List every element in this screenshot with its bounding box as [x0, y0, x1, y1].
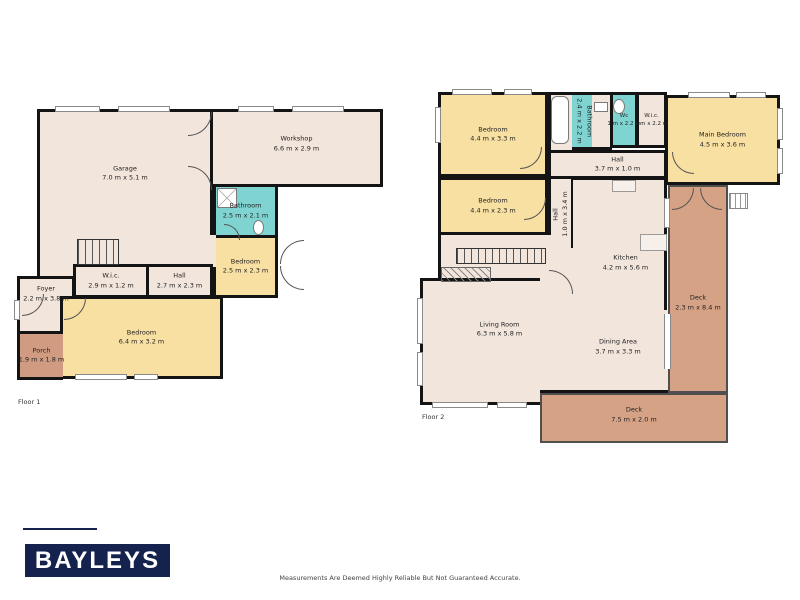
room-dimensions: 4.4 m x 2.3 m [470, 206, 515, 216]
floor2-label: Floor 2 [422, 413, 444, 421]
room-label: Bathroom2.4 m x 2.2 m [574, 98, 594, 143]
stairs [77, 239, 119, 265]
room-dimensions: 1.0 m x 3.4 m [561, 191, 571, 236]
slider-door [664, 314, 671, 369]
room-label: Main Bedroom4.5 m x 3.6 m [699, 130, 746, 150]
room-dimensions: 1 m x 2.2 m [635, 120, 668, 128]
room-label: Deck2.3 m x 8.4 m [675, 293, 720, 313]
room-name: Living Room [477, 320, 522, 330]
bayleys-logo: BAYLEYS [25, 544, 170, 577]
room-dimensions: 1.9 m x 1.8 m [19, 356, 64, 366]
room-label: W.i.c.2.9 m x 1.2 m [88, 271, 133, 291]
window [292, 106, 344, 112]
room-label: Hall1.0 m x 3.4 m [551, 191, 571, 236]
window [777, 148, 783, 174]
room-label: Kitchen4.2 m x 5.6 m [603, 253, 648, 273]
room-name: Hall [595, 155, 640, 165]
bathtub-icon [551, 96, 569, 144]
stove-icon [640, 234, 667, 251]
room-name: Hall [157, 271, 202, 281]
window [452, 89, 492, 95]
room-label: Garage7.0 m x 5.1 m [102, 164, 147, 184]
room-label: Bedroom4.4 m x 3.3 m [470, 125, 515, 145]
room-name: W.i.c. [635, 112, 668, 120]
room-label: Deck7.5 m x 2.0 m [611, 405, 656, 425]
stairs [456, 248, 546, 264]
window [432, 402, 488, 408]
room-living-room-f2: Living Room6.3 m x 5.8 m [420, 278, 540, 405]
logo-stripe [23, 528, 97, 530]
room-dimensions: 2.4 m x 2.2 m [574, 98, 584, 143]
room-dimensions: 3.7 m x 3.3 m [595, 347, 640, 357]
room-garage-f1: Garage7.0 m x 5.1 m [37, 109, 213, 238]
room-label: W.i.c.1 m x 2.2 m [635, 112, 668, 129]
room-name: Bedroom [470, 125, 515, 135]
window [238, 106, 274, 112]
room-name: Bathroom [223, 201, 268, 211]
room-dimensions: 2.2 m x 3.8 m [23, 294, 68, 304]
window [134, 374, 158, 380]
room-hall-f1: Hall2.7 m x 2.3 m [146, 264, 213, 298]
room-hall-f2: Hall3.7 m x 1.0 m [548, 150, 667, 179]
room-label: Bedroom6.4 m x 3.2 m [119, 328, 164, 348]
room-label: Hall2.7 m x 2.3 m [157, 271, 202, 291]
room-name: Bedroom [119, 328, 164, 338]
disclaimer-text: Measurements Are Deemed Highly Reliable … [0, 574, 800, 582]
floorplan-canvas: Garage7.0 m x 5.1 mWorkshop6.6 m x 2.9 m… [0, 0, 800, 600]
door-arc [280, 240, 304, 264]
toilet-icon [253, 220, 264, 235]
room-hall-f2: Hall1.0 m x 3.4 m [548, 179, 574, 249]
room-name: Hall [551, 191, 561, 236]
window [504, 89, 532, 95]
window [688, 92, 730, 98]
room-label: Workshop6.6 m x 2.9 m [274, 134, 319, 154]
room-label: Bedroom2.5 m x 2.3 m [223, 257, 268, 277]
room-main-bedroom-f2: Main Bedroom4.5 m x 3.6 m [665, 95, 780, 185]
room-name: Kitchen [603, 253, 648, 263]
hatch [441, 267, 491, 282]
window [417, 298, 423, 344]
room-bedroom-f1: Bedroom2.5 m x 2.3 m [213, 235, 278, 298]
room-dimensions: 4.4 m x 3.3 m [470, 135, 515, 145]
room-dimensions: 2.7 m x 2.3 m [157, 281, 202, 291]
room-dimensions: 6.3 m x 5.8 m [477, 330, 522, 340]
window [777, 108, 783, 140]
window [55, 106, 100, 112]
window [417, 352, 423, 386]
room-bedroom-f1: Bedroom6.4 m x 3.2 m [60, 296, 223, 379]
floor1-label: Floor 1 [18, 398, 40, 406]
room-label: Bathroom2.5 m x 2.1 m [223, 201, 268, 221]
room-dimensions: 4.5 m x 3.6 m [699, 140, 746, 150]
window [75, 374, 127, 380]
room-dimensions: 6.4 m x 3.2 m [119, 338, 164, 348]
room-deck-f2: Deck7.5 m x 2.0 m [540, 393, 728, 443]
room-label: Foyer2.2 m x 3.8 m [23, 284, 68, 304]
room-name: Dining Area [595, 337, 640, 347]
room-dimensions: 2.5 m x 2.1 m [223, 211, 268, 221]
room-w-i-c-f1: W.i.c.2.9 m x 1.2 m [73, 264, 149, 298]
room-dimensions: 7.5 m x 2.0 m [611, 415, 656, 425]
room-dimensions: 3.7 m x 1.0 m [595, 165, 640, 175]
room-dining-area-f2: Dining Area3.7 m x 3.3 m [540, 310, 668, 393]
room-name: Garage [102, 164, 147, 174]
kitchen-counter [612, 180, 636, 192]
door-arc [280, 266, 304, 290]
room-area-f1 [37, 235, 216, 267]
room-dimensions: 2.3 m x 8.4 m [675, 303, 720, 313]
room-name: W.i.c. [88, 271, 133, 281]
room-name: Deck [675, 293, 720, 303]
room-w-i-c-f2: W.i.c.1 m x 2.2 m [636, 92, 667, 148]
window [118, 106, 170, 112]
room-name: Foyer [23, 284, 68, 294]
room-dimensions: 2.5 m x 2.3 m [223, 267, 268, 277]
room-name: Bedroom [223, 257, 268, 267]
room-workshop-f1: Workshop6.6 m x 2.9 m [210, 109, 383, 187]
room-dimensions: 4.2 m x 5.6 m [603, 263, 648, 273]
window [14, 300, 20, 320]
window [736, 92, 766, 98]
exterior-steps [729, 193, 748, 209]
room-name: Bedroom [470, 196, 515, 206]
window [664, 198, 670, 228]
room-deck-f2: Deck2.3 m x 8.4 m [668, 185, 728, 393]
room-name: Bathroom [584, 98, 594, 143]
room-label: Living Room6.3 m x 5.8 m [477, 320, 522, 340]
room-name: Deck [611, 405, 656, 415]
room-bathroom-f2: Bathroom2.4 m x 2.2 m [572, 92, 595, 150]
sink-icon [594, 102, 608, 112]
room-label: Dining Area3.7 m x 3.3 m [595, 337, 640, 357]
room-dimensions: 6.6 m x 2.9 m [274, 144, 319, 154]
room-dimensions: 2.9 m x 1.2 m [88, 281, 133, 291]
window [497, 402, 527, 408]
window [435, 107, 441, 143]
room-dimensions: 7.0 m x 5.1 m [102, 174, 147, 184]
room-label: Porch1.9 m x 1.8 m [19, 346, 64, 366]
room-label: Bedroom4.4 m x 2.3 m [470, 196, 515, 216]
room-name: Workshop [274, 134, 319, 144]
room-name: Porch [19, 346, 64, 356]
room-name: Main Bedroom [699, 130, 746, 140]
bayleys-logo-text: BAYLEYS [35, 547, 160, 575]
room-porch-f1: Porch1.9 m x 1.8 m [17, 331, 63, 380]
room-label: Hall3.7 m x 1.0 m [595, 155, 640, 175]
